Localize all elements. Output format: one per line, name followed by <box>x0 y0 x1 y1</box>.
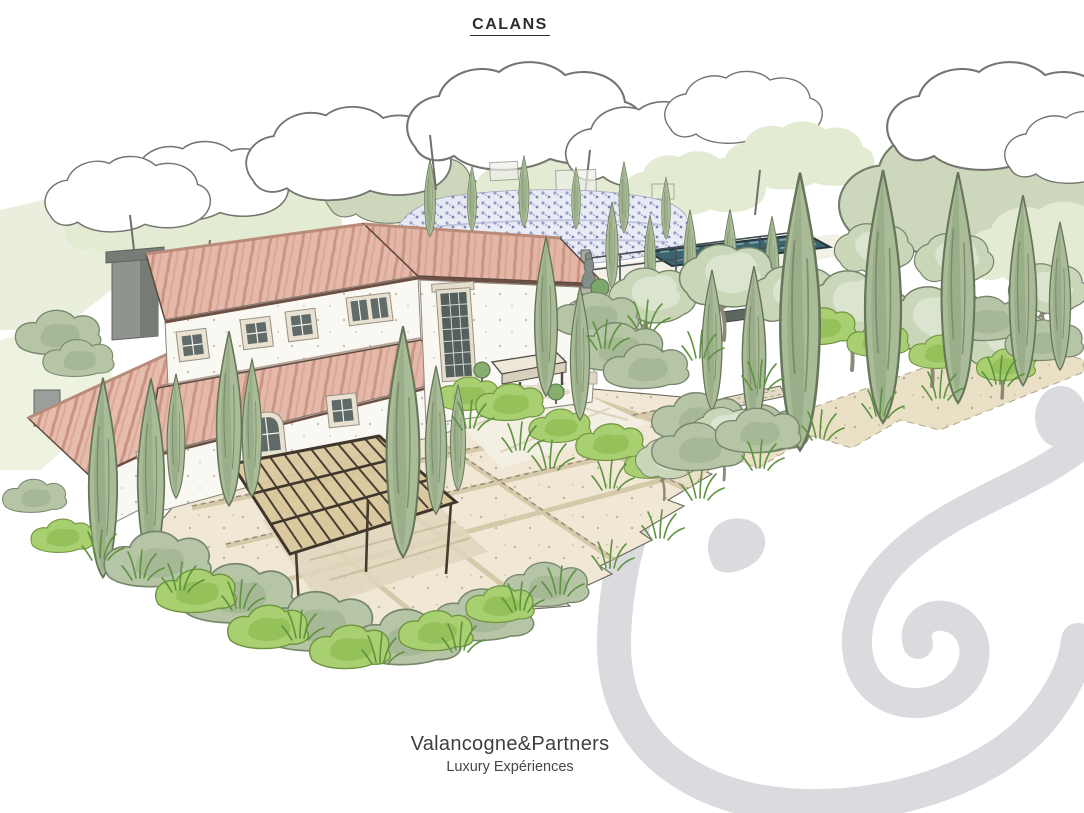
brand-name: Valancogne&Partners <box>0 733 1020 756</box>
shrub <box>3 479 67 512</box>
tree-canopy <box>45 156 210 231</box>
cypress-tree <box>780 173 820 451</box>
footer: Valancogne&Partners Luxury Expériences <box>0 733 1020 775</box>
sketch-page: CALANS <box>0 0 1084 813</box>
villa-illustration <box>0 0 1084 813</box>
watermark-comma <box>708 518 765 572</box>
brand-tagline: Luxury Expériences <box>0 759 1020 775</box>
watermark-spiral <box>857 446 1079 703</box>
